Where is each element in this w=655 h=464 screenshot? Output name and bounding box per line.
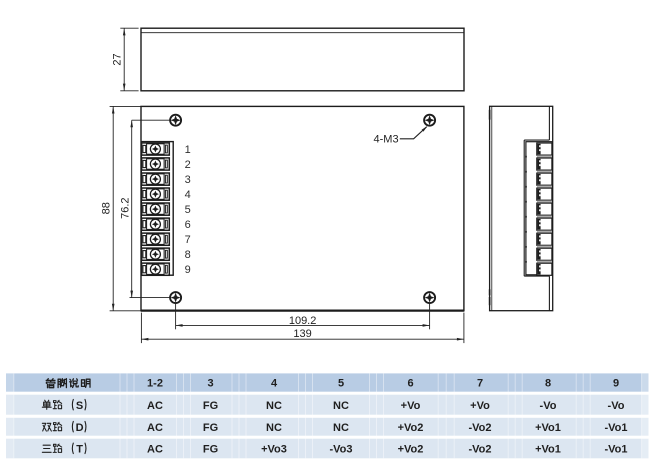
svg-text:FG: FG <box>203 400 218 412</box>
svg-text:-Vo: -Vo <box>608 400 625 412</box>
svg-text:-Vo: -Vo <box>540 400 557 412</box>
svg-text:7: 7 <box>185 234 191 246</box>
svg-text:+Vo2: +Vo2 <box>398 444 424 456</box>
svg-text:+Vo: +Vo <box>470 400 490 412</box>
svg-text:NC: NC <box>266 400 282 412</box>
svg-text:+Vo3: +Vo3 <box>261 444 287 456</box>
svg-text:NC: NC <box>333 400 349 412</box>
svg-text:AC: AC <box>147 444 163 456</box>
svg-text:+Vo2: +Vo2 <box>398 422 424 434</box>
svg-text:6: 6 <box>185 219 191 231</box>
svg-text:8: 8 <box>545 378 551 390</box>
svg-text:-Vo3: -Vo3 <box>329 444 352 456</box>
svg-text:6: 6 <box>407 378 413 390</box>
svg-text:9: 9 <box>185 264 191 276</box>
svg-text:4: 4 <box>271 378 278 390</box>
svg-text:+Vo: +Vo <box>401 400 421 412</box>
svg-text:1: 1 <box>185 144 191 156</box>
svg-text:1-2: 1-2 <box>147 378 163 390</box>
svg-text:S: S <box>76 400 83 412</box>
svg-text:76.2: 76.2 <box>119 197 131 218</box>
svg-text:7: 7 <box>477 378 483 390</box>
svg-text:139: 139 <box>293 328 311 340</box>
svg-text:2: 2 <box>185 159 191 171</box>
svg-text:3: 3 <box>185 174 191 186</box>
svg-text:5: 5 <box>338 378 344 390</box>
svg-text:9: 9 <box>613 378 619 390</box>
svg-text:-Vo1: -Vo1 <box>604 422 627 434</box>
svg-text:AC: AC <box>147 422 163 434</box>
svg-text:+Vo1: +Vo1 <box>535 422 561 434</box>
svg-text:+Vo1: +Vo1 <box>535 444 561 456</box>
svg-text:8: 8 <box>185 249 191 261</box>
svg-text:88: 88 <box>100 202 112 214</box>
svg-text:D: D <box>76 422 84 434</box>
svg-text:T: T <box>76 444 83 456</box>
svg-text:FG: FG <box>203 444 218 456</box>
svg-text:-Vo2: -Vo2 <box>468 444 491 456</box>
svg-text:-Vo1: -Vo1 <box>604 444 627 456</box>
svg-text:5: 5 <box>185 204 191 216</box>
svg-text:27: 27 <box>112 53 124 65</box>
svg-text:4: 4 <box>185 189 191 201</box>
svg-text:AC: AC <box>147 400 163 412</box>
svg-text:NC: NC <box>333 422 349 434</box>
svg-text:109.2: 109.2 <box>289 315 317 327</box>
svg-text:4-M3: 4-M3 <box>374 134 399 146</box>
svg-text:-Vo2: -Vo2 <box>468 422 491 434</box>
svg-text:FG: FG <box>203 422 218 434</box>
svg-text:NC: NC <box>266 422 282 434</box>
svg-text:3: 3 <box>207 378 213 390</box>
